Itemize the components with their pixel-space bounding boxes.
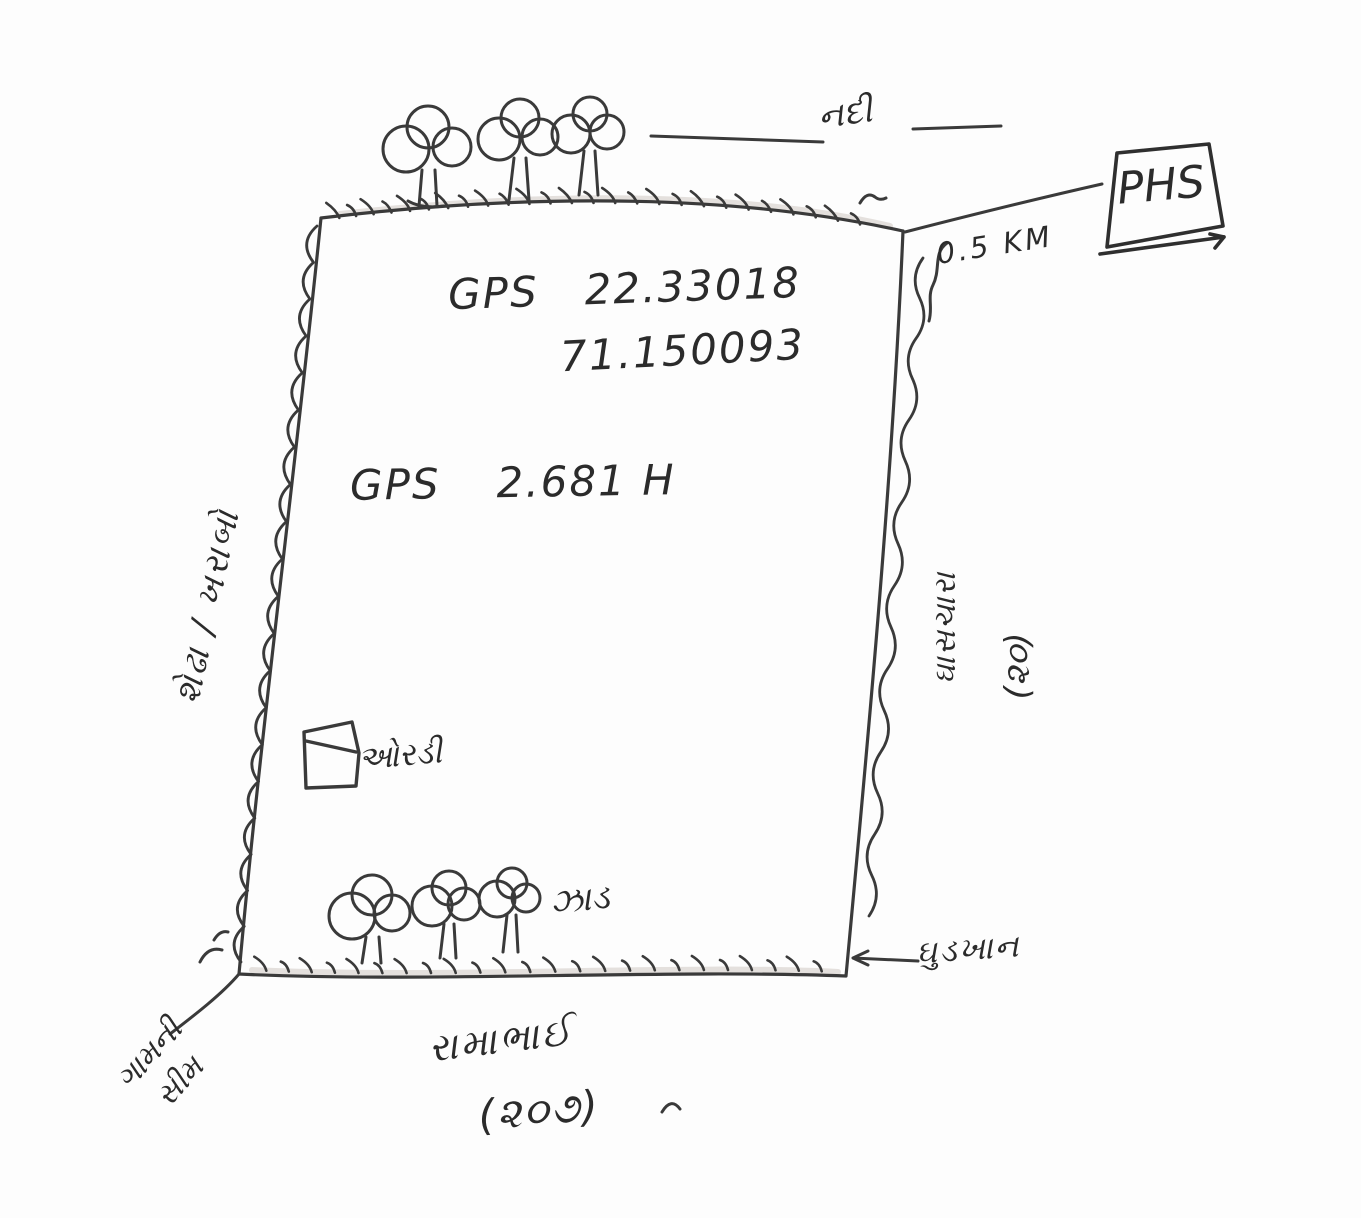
gps-area-value: 2.681 H (496, 455, 676, 507)
river-label: નદી (815, 90, 874, 137)
gps-area-line: GPS2.681 H (350, 455, 677, 510)
corner-squiggle (860, 195, 886, 203)
plot-boundary (239, 201, 903, 977)
phs-label: PHS (1106, 155, 1216, 215)
hut-icon (304, 722, 359, 788)
right-neighbor-name: ઘાસચારા (928, 520, 963, 735)
bottom-right-feature-label: ઘુડખાન (915, 926, 1022, 972)
gps-latitude: 22.33018 (584, 258, 802, 315)
land-sketch-page: GPS22.33018 71.150093 GPS2.681 H નદી PHS… (0, 0, 1361, 1218)
gps-area-label: GPS (350, 459, 441, 510)
trees-label: ઝાડ (548, 877, 611, 923)
tree-icon (383, 97, 624, 207)
tree-icon (329, 868, 540, 963)
gps-label: GPS (447, 267, 539, 319)
hut-label: ઓરડી (356, 732, 443, 778)
caret-mark (662, 1104, 680, 1112)
bottom-right-arrow (853, 951, 918, 965)
right-neighbor-survey-number: (૨૦) (998, 606, 1038, 726)
plot-boundary-path (239, 201, 903, 977)
bottom-neighbor-survey-number: (૨૦૭) (476, 1081, 602, 1141)
